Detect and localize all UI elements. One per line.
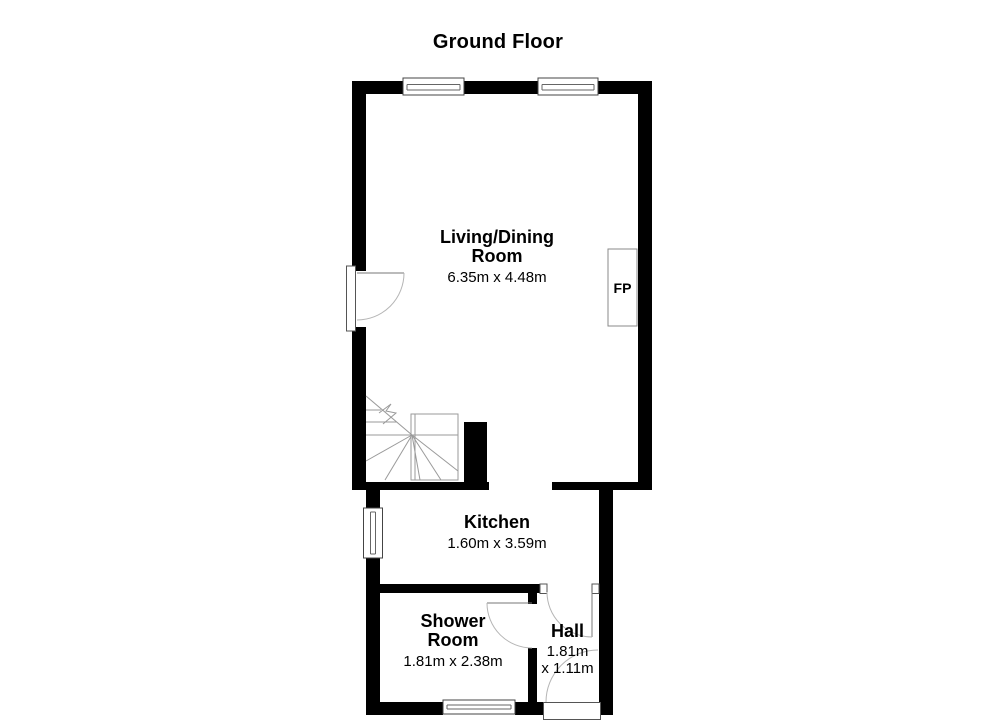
room-name: Room — [377, 631, 529, 650]
door-icon-living-external — [347, 266, 405, 331]
room-label-shower-room: Shower Room 1.81m x 2.38m — [377, 612, 529, 670]
wall-kitchen-left-upper — [366, 489, 380, 508]
stairs-icon — [366, 396, 458, 480]
room-dimensions: 1.81m x 2.38m — [377, 653, 529, 670]
wall-right — [638, 81, 652, 489]
wall-left-lower — [352, 327, 366, 482]
window-icon-top-left — [403, 78, 464, 95]
wall-stair-stub — [464, 422, 487, 482]
fireplace-label: FP — [608, 249, 637, 326]
wall-left-upper — [352, 81, 366, 271]
wall-living-bottom-left — [352, 482, 489, 490]
room-name: Hall — [536, 622, 599, 641]
wall-kitchen-hall-right — [599, 482, 613, 715]
window-icon-shower-bottom — [443, 700, 515, 714]
room-name: Room — [397, 247, 597, 266]
room-label-hall: Hall 1.81m x 1.11m — [536, 622, 599, 677]
window-icon-kitchen-left — [364, 508, 383, 558]
floor-plan: Ground Floor Living/Dining Room 6.35m x … — [0, 0, 1000, 727]
room-name: Kitchen — [397, 513, 597, 532]
room-name: Shower — [377, 612, 529, 631]
wall-bottom-middle — [515, 702, 546, 715]
window-icon-top-right — [538, 78, 598, 95]
page-title: Ground Floor — [348, 31, 648, 54]
wall-top — [352, 81, 652, 94]
wall-divider-top — [528, 584, 537, 604]
room-label-kitchen: Kitchen 1.60m x 3.59m — [397, 513, 597, 552]
wall-kitchen-bottom — [366, 584, 540, 593]
room-dimensions: 1.60m x 3.59m — [397, 535, 597, 552]
room-label-living-dining: Living/Dining Room 6.35m x 4.48m — [397, 228, 597, 286]
room-dimensions: 6.35m x 4.48m — [397, 269, 597, 286]
room-name: Living/Dining — [397, 228, 597, 247]
room-dimensions: x 1.11m — [536, 660, 599, 677]
room-dimensions: 1.81m — [536, 643, 599, 660]
wall-bottom-left — [366, 702, 443, 715]
